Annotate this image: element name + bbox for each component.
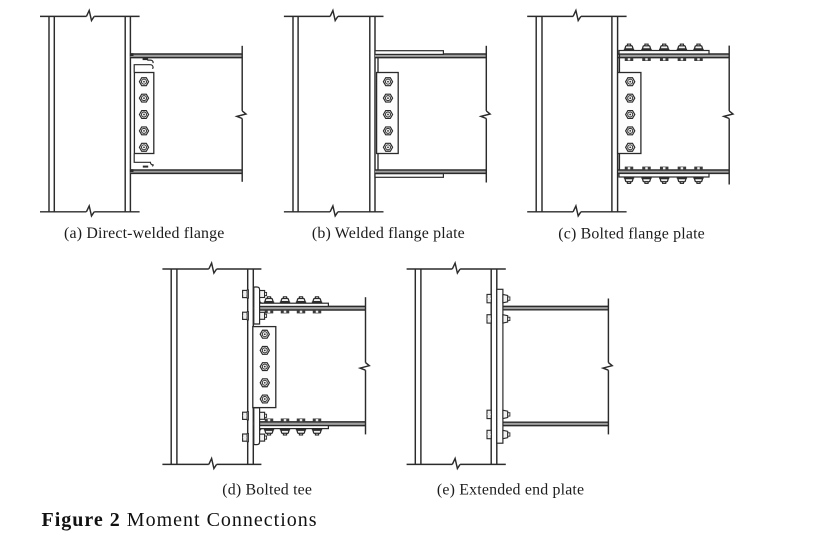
svg-text:(a) Direct-welded flange: (a) Direct-welded flange (64, 225, 225, 242)
svg-text:(c) Bolted flange plate: (c) Bolted flange plate (558, 225, 705, 242)
svg-text:(d) Bolted tee: (d) Bolted tee (222, 482, 312, 499)
svg-text:Figure 2 Moment Connections: Figure 2 Moment Connections (42, 509, 318, 531)
svg-text:(e) Extended end plate: (e) Extended end plate (437, 481, 584, 498)
svg-text:(b) Welded flange plate: (b) Welded flange plate (312, 225, 465, 242)
